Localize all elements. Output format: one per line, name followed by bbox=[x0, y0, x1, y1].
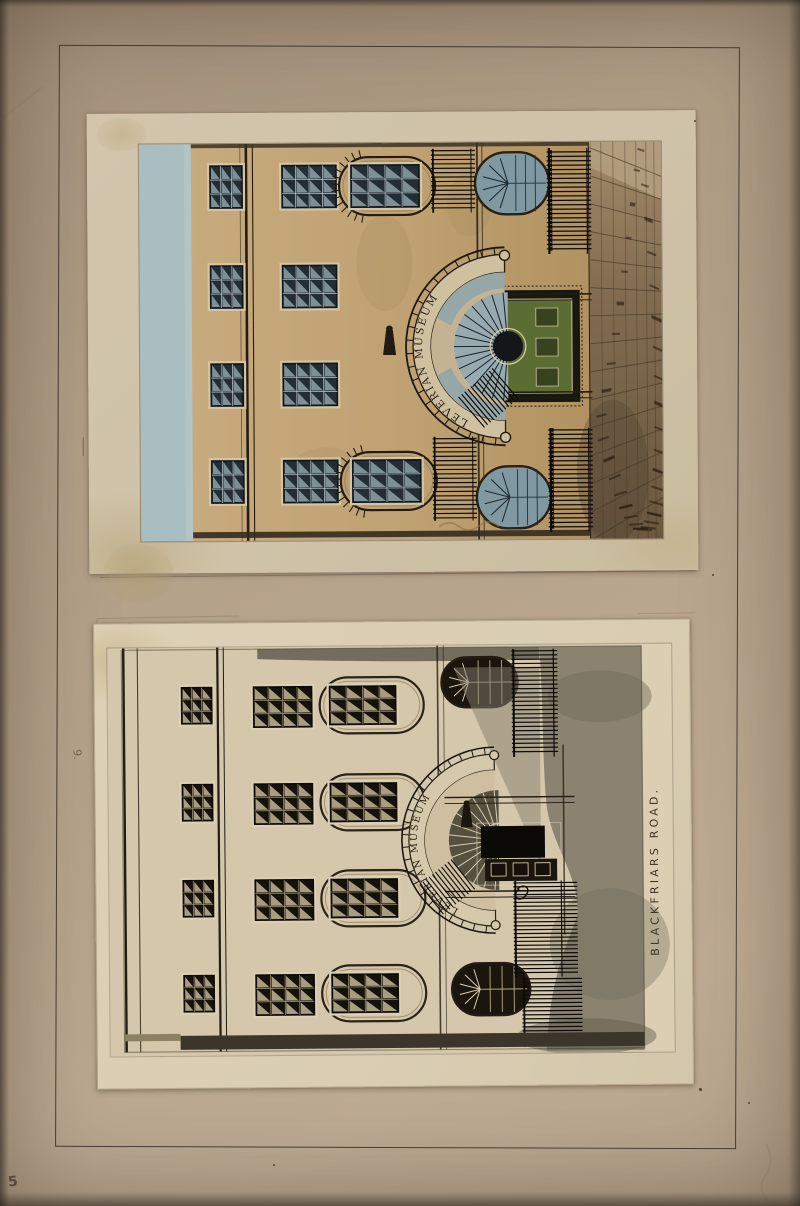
volute bbox=[490, 751, 499, 760]
window bbox=[209, 458, 247, 506]
arched-window bbox=[477, 466, 551, 528]
street-inscription: BLACKFRIARS ROAD. bbox=[647, 787, 661, 956]
top-drawing-watercolor: LEVERIAN MUSEUM bbox=[139, 141, 663, 541]
window bbox=[208, 361, 246, 409]
arched-window bbox=[475, 152, 549, 214]
railing-rail bbox=[435, 437, 436, 521]
corner-sheet-number: 5 bbox=[7, 1174, 18, 1191]
window bbox=[281, 457, 341, 505]
plate-number-bottom: 9. bbox=[70, 749, 84, 760]
window bbox=[180, 878, 216, 920]
speck bbox=[712, 574, 714, 576]
window bbox=[280, 262, 340, 310]
arched-window bbox=[452, 963, 530, 1016]
photo-edge-shadow bbox=[0, 0, 9, 1206]
window bbox=[350, 457, 424, 505]
bottom-drawing-sepia: LEVERIAN MUSEUM bbox=[107, 644, 675, 1057]
railing-bars bbox=[548, 428, 594, 529]
speck bbox=[699, 1088, 702, 1091]
mounted-drawings-photo: 10 9. 5 bbox=[0, 0, 800, 1206]
speck bbox=[273, 1164, 275, 1166]
railing-rail bbox=[589, 428, 590, 532]
photo-edge-shadow bbox=[0, 1192, 800, 1206]
volute bbox=[499, 250, 509, 260]
railing-rail bbox=[513, 649, 514, 757]
window bbox=[329, 971, 401, 1016]
speck bbox=[694, 120, 696, 122]
window bbox=[280, 360, 340, 408]
bottom-drawing-sheet: LEVERIAN MUSEUM bbox=[93, 618, 694, 1089]
photo-edge-shadow bbox=[788, 0, 800, 1206]
window bbox=[181, 973, 217, 1015]
pencil-squiggle bbox=[752, 1140, 792, 1206]
window bbox=[327, 780, 399, 825]
window bbox=[179, 685, 215, 727]
railing-rail bbox=[587, 148, 588, 254]
volute bbox=[501, 432, 511, 442]
window bbox=[251, 781, 315, 828]
window bbox=[327, 683, 399, 728]
window bbox=[348, 162, 422, 210]
railing-rail bbox=[473, 437, 474, 521]
railing-rail bbox=[551, 428, 552, 532]
photo-edge-shadow bbox=[0, 0, 800, 7]
window bbox=[251, 684, 315, 731]
window bbox=[328, 876, 400, 921]
window bbox=[252, 877, 316, 924]
speck bbox=[748, 1102, 750, 1104]
volute bbox=[491, 921, 500, 930]
mount-crease bbox=[2, 86, 44, 119]
window bbox=[179, 782, 215, 824]
window bbox=[279, 162, 339, 210]
top-drawing-sheet: LEVERIAN MUSEUM bbox=[87, 110, 699, 574]
window bbox=[253, 972, 317, 1019]
window bbox=[207, 163, 245, 211]
railing-rail bbox=[549, 148, 550, 254]
railing-bars bbox=[546, 150, 592, 251]
window bbox=[208, 263, 246, 311]
